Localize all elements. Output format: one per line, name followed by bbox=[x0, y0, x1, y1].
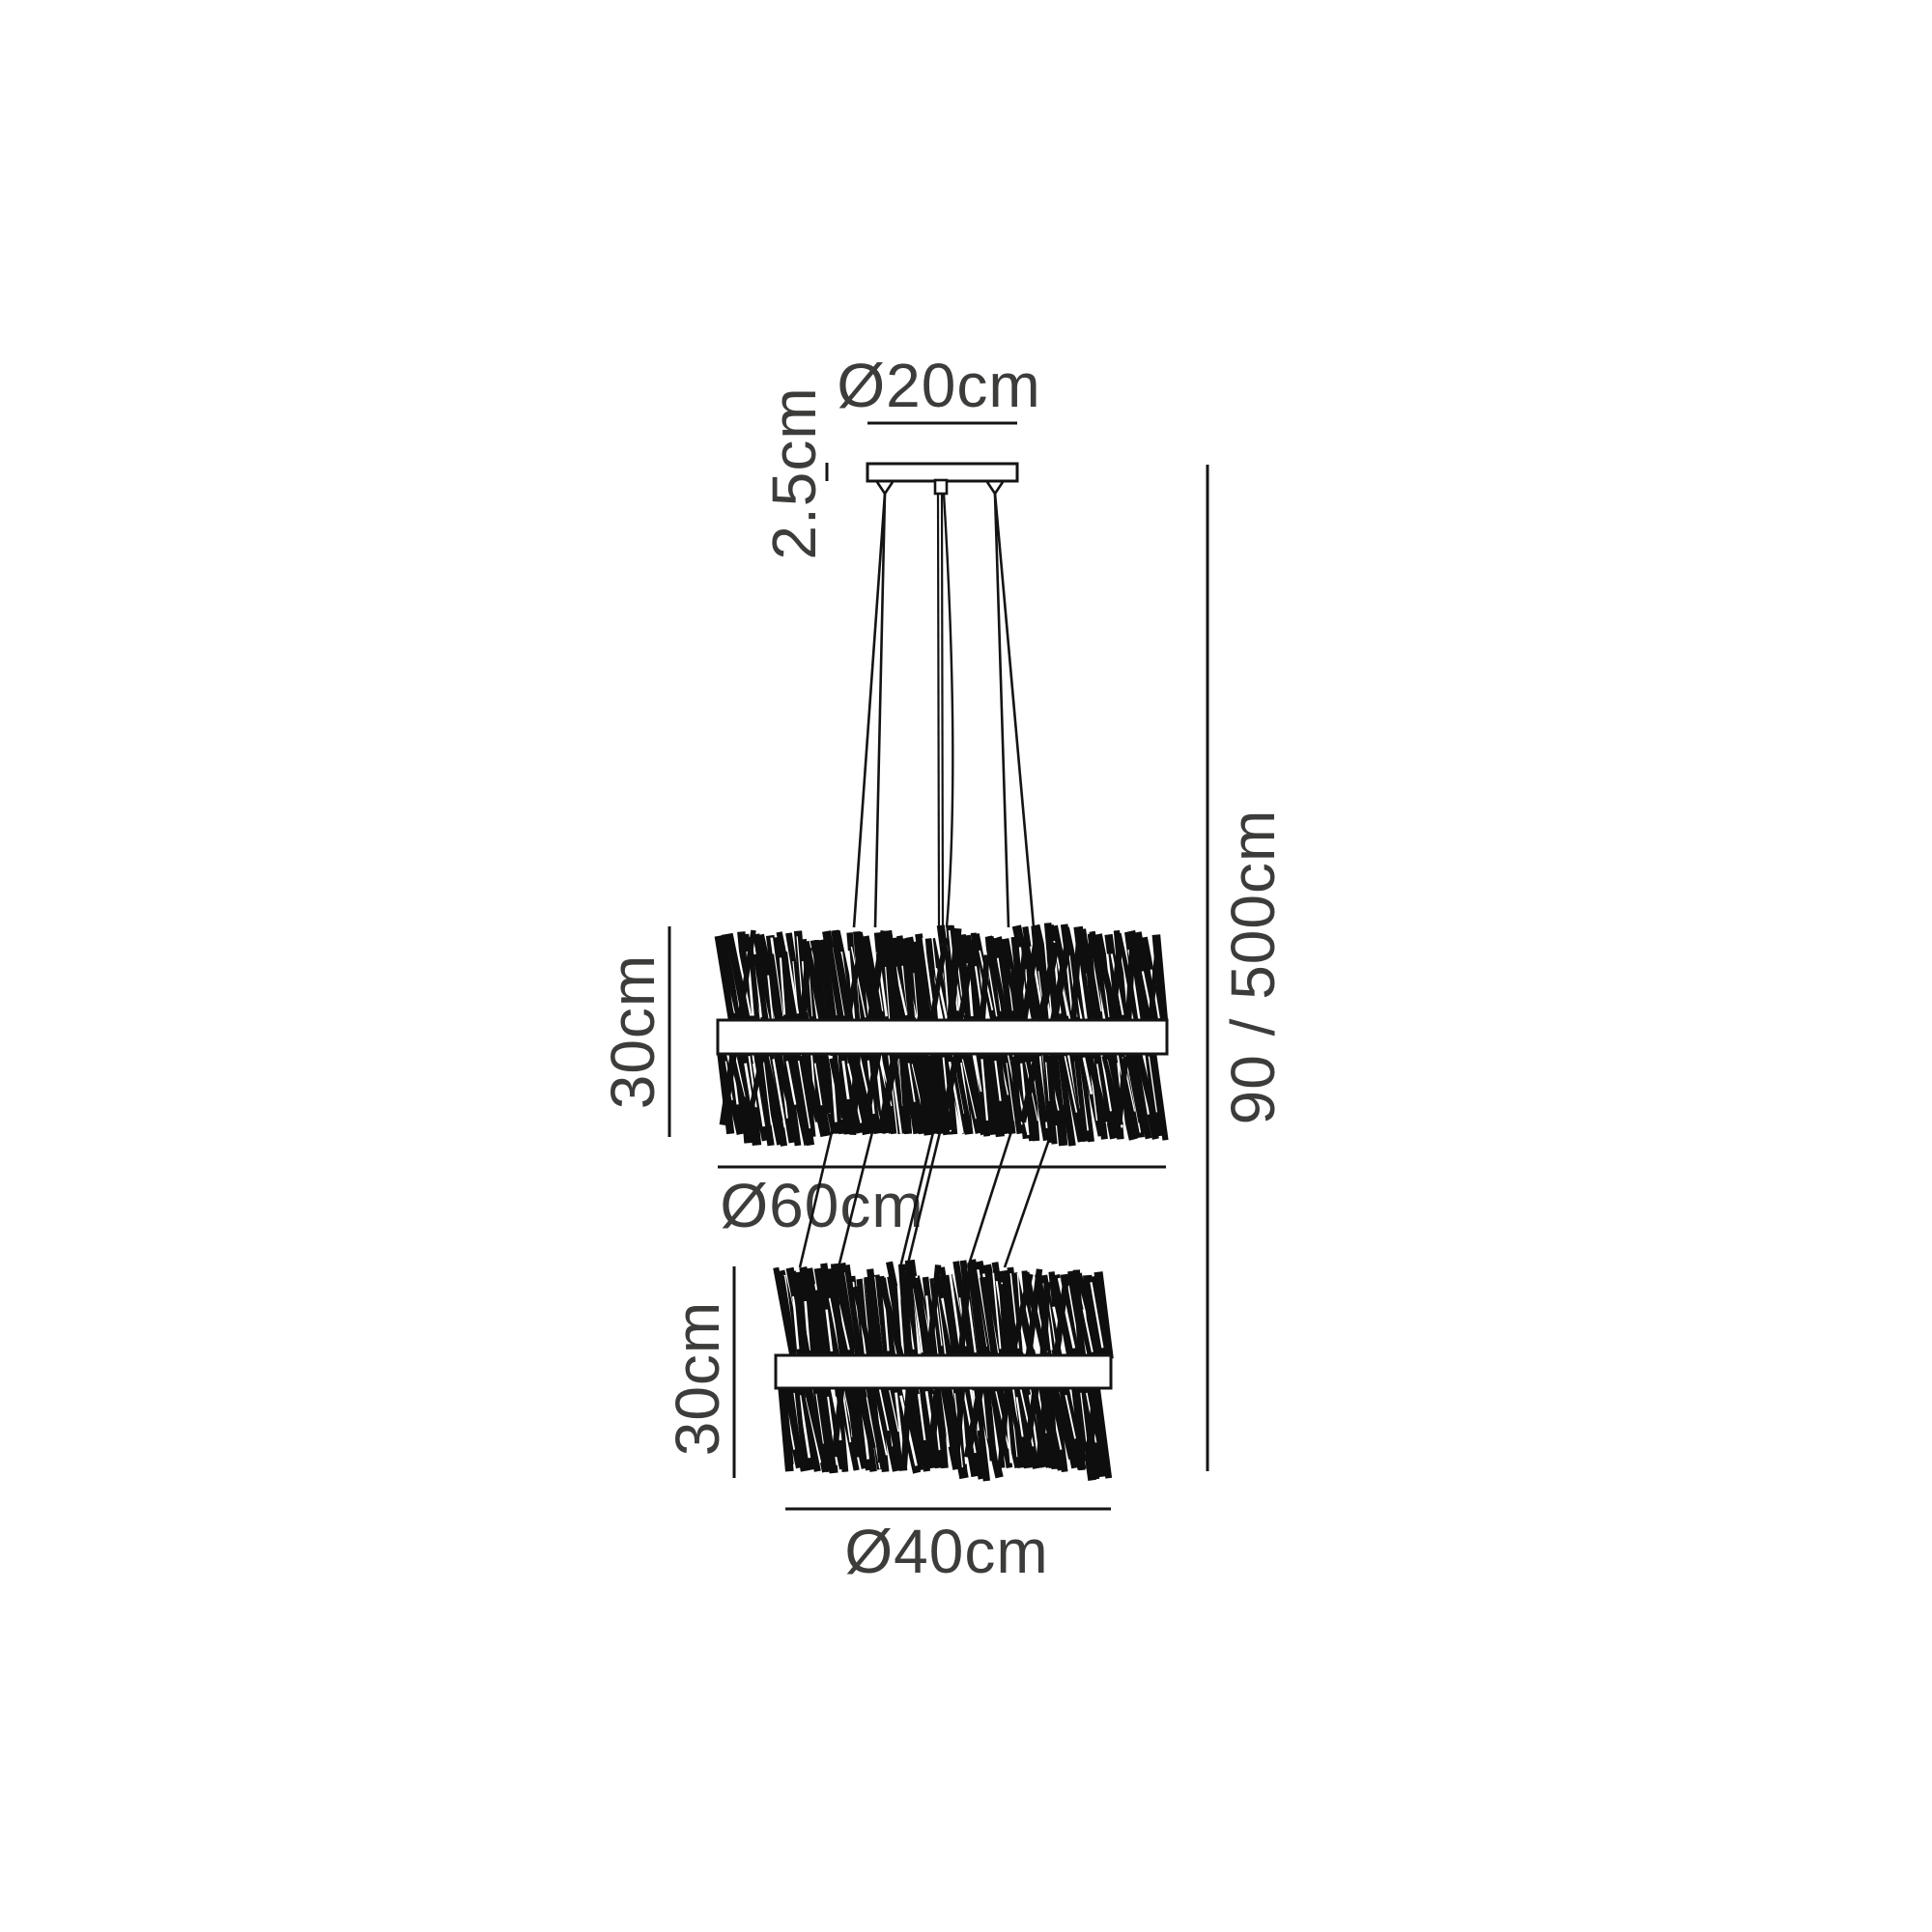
lower-shade bbox=[773, 1259, 1114, 1481]
suspension-wires bbox=[800, 494, 1053, 1267]
upper-shade bbox=[715, 923, 1169, 1147]
diagram-canvas bbox=[0, 0, 1932, 1932]
dimension-diagram: Ø20cm 2.5cm 30cm Ø60cm 30cm Ø40cm 90 / 5… bbox=[0, 0, 1932, 1932]
ceiling-canopy bbox=[867, 464, 1017, 494]
